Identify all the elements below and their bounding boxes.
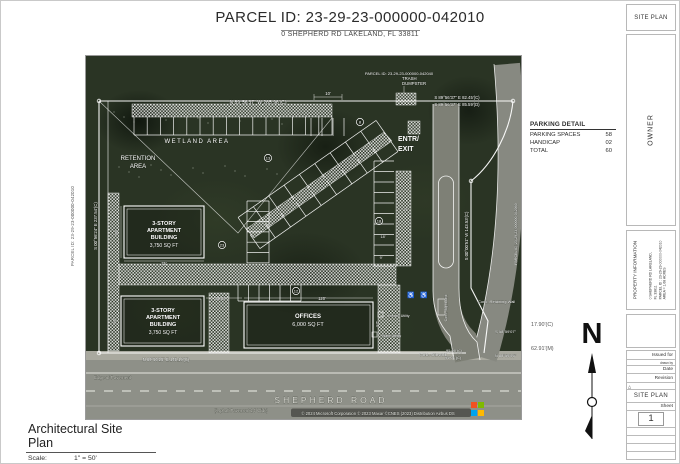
wetland-dot [118, 166, 119, 167]
dim-annotation: 17.90'(C) [531, 322, 553, 328]
ms-logo-square [478, 402, 484, 408]
page-title: PARCEL ID: 23-29-23-000000-042010 [150, 9, 550, 26]
map-label: OFFICES [295, 314, 321, 320]
wetland-dot [234, 170, 235, 171]
scale-value: 1" = 50' [74, 455, 97, 462]
parking-count-number: 23 [220, 243, 225, 248]
plan-name-row: SITE PLAN [627, 390, 675, 403]
parking-stall-line [238, 217, 248, 231]
wetland-dot [192, 167, 193, 168]
map-label: (Asphalt Pavement 24' Wide) [214, 408, 269, 413]
page-subtitle: 0 SHEPHERD RD LAKELAND, FL 33811 [150, 31, 550, 38]
parking-stall-line [330, 153, 340, 167]
parking-stall-line [376, 120, 386, 134]
owner-label-wrap: OWNER [627, 35, 675, 225]
north-letter: N [577, 319, 607, 349]
wetland-dot [207, 122, 208, 123]
map-label: EXIT [398, 146, 414, 153]
map-label: Water Utility [382, 334, 401, 338]
property-info-panel: PROPERTY INFORMATION 0 SHEPHERD RD LAKEL… [626, 230, 676, 310]
revision-row: Revision [627, 374, 675, 383]
map-label: Electric Utility [388, 314, 410, 318]
plan-title: Architectural Site Plan [26, 422, 156, 453]
owner-label: OWNER [648, 114, 655, 146]
wetland-dot [281, 123, 282, 124]
parking-row-value: 60 [606, 147, 612, 155]
wetland-dot [266, 168, 267, 169]
titleblock-rows: Issued for drawn by Date Revision △ SITE… [626, 350, 676, 460]
issued-for-row: Issued for [627, 351, 675, 360]
wetland-dot [261, 113, 262, 114]
property-info-title: PROPERTY INFORMATION [632, 241, 637, 299]
map-label: 3,750 SQ FT [150, 243, 179, 249]
parking-row-label: TOTAL [530, 147, 548, 155]
empty-row [627, 428, 675, 436]
map-label: ♿ [407, 291, 415, 299]
title-underline [281, 30, 420, 31]
sheet-corner-label: SITE PLAN [626, 4, 676, 31]
map-label: N 89°50'25" E 145.19'(C) [143, 357, 190, 362]
map-label: 50' [114, 229, 119, 235]
parking-row-value: 02 [606, 139, 612, 147]
ms-logo-square [471, 410, 477, 416]
map-label: BUILDING [151, 235, 178, 241]
parking-row-value: 58 [606, 131, 612, 139]
wetland-dot [155, 114, 156, 115]
map-label: S 00°00'51" W 143.53'(C) [464, 211, 469, 260]
scale-label: Scale: [28, 455, 74, 462]
wetland-dot [128, 171, 129, 172]
ms-logo-square [471, 402, 477, 408]
parking-stall-line [284, 185, 294, 199]
parking-detail-row: HANDICAP 02 [530, 139, 612, 147]
parking-detail-row: PARKING SPACES 58 [530, 131, 612, 139]
parking-stall-line [345, 142, 355, 156]
property-address-2: FL 33811 [653, 285, 657, 299]
wetland-dot [113, 111, 114, 112]
ms-logo-square [478, 410, 484, 416]
map-label: WETLAND AREA [164, 139, 229, 145]
map-label: N 88°59'05" [495, 353, 517, 358]
parking-stall-line [253, 207, 263, 221]
parking-detail-row: TOTAL 60 [530, 147, 612, 155]
map-label: APARTMENT [147, 228, 182, 234]
parking-stall-line [388, 138, 398, 152]
map-label: © 2024 Microsoft Corporation © 2023 Maxa… [301, 411, 455, 416]
parking-stall-line [260, 152, 398, 249]
property-area: AREA = 1.68 ACRES [663, 267, 667, 299]
microsoft-logo [471, 402, 485, 416]
map-label: 120' [318, 296, 326, 301]
map-label: Edge of Pavement [94, 375, 132, 380]
empty-panel [626, 314, 676, 348]
map-label: 3,750 SQ FT [149, 330, 178, 336]
wetland-dot [244, 175, 245, 176]
owner-panel: OWNER [626, 34, 676, 226]
map-label: BUILDING [150, 322, 177, 328]
map-label: AREA [130, 164, 146, 170]
map-label: PARCEL ID: 23-29-23-000000-042060 [514, 203, 518, 264]
empty-row [627, 444, 675, 452]
apartment-building-2 [121, 296, 204, 346]
empty-row [627, 436, 675, 444]
date-row: Date [627, 366, 675, 374]
map-label: Conc. Sidewalk [419, 352, 447, 357]
wetland-dot [133, 121, 134, 122]
parking-stall-line [315, 164, 325, 178]
north-arrow-glyph [579, 349, 605, 443]
map-label: S 89°56'37" E 82.45'(C) [434, 95, 480, 100]
parking-detail-title: PARKING DETAIL [530, 121, 616, 130]
map-label: Conc. Retaining Wall [478, 299, 515, 304]
wetland-dot [271, 118, 272, 119]
site-plan-map: PARCEL ID: 23-29-23-000000-042040N 89°56… [85, 55, 522, 420]
map-label: S 89°56'37" E 85.59'(D) [434, 102, 480, 107]
map-label: 10' [325, 91, 331, 96]
wetland-dot [187, 112, 188, 113]
parking-stall-line [269, 196, 279, 210]
wetland-dot [276, 173, 277, 174]
revision-delta-icon: △ [627, 383, 675, 390]
map-label: N 89°56'37" W 265.96'(C) [229, 100, 286, 106]
property-parcel: PARCEL ID : 23-29-23-000000-042010 [658, 241, 662, 300]
wetland-dot [224, 165, 225, 166]
map-label: 30.67' [215, 296, 226, 301]
header: PARCEL ID: 23-29-23-000000-042010 0 SHEP… [150, 9, 550, 38]
property-info-title-wrap: PROPERTY INFORMATION [627, 231, 642, 309]
map-label: ♿ [420, 291, 428, 299]
wetland-dot [202, 172, 203, 173]
parking-count-number: 13 [266, 156, 271, 161]
map-label: PARCEL ID: 23-29-23-000000-042040 [365, 71, 434, 76]
map-label: 3-STORY [152, 221, 176, 227]
wetland-dot [138, 176, 139, 177]
map-label: 9' [380, 256, 383, 260]
site-plan-sheet: PARCEL ID: 23-29-23-000000-042010 0 SHEP… [0, 0, 680, 464]
map-label: SHEPHERD ROAD [274, 395, 387, 405]
parking-count-number: 18 [377, 219, 382, 224]
map-label: 57' [375, 321, 380, 327]
wetland-dot [197, 117, 198, 118]
parking-row-label: PARKING SPACES [530, 131, 580, 139]
map-label: RETENTION [121, 156, 156, 162]
parking-stall-line [299, 174, 309, 188]
property-info-details-wrap: 0 SHEPHERD RD LAKELAND, FL 33811 PARCEL … [642, 231, 674, 309]
map-label: 6,000 SQ FT [292, 322, 324, 328]
parking-detail: PARKING DETAIL PARKING SPACES 58 HANDICA… [530, 121, 616, 155]
property-address-1: 0 SHEPHERD RD LAKELAND, [648, 252, 652, 299]
wetland-dot [123, 116, 124, 117]
wetland-dot [229, 115, 230, 116]
map-label: ENTR/ [398, 136, 419, 143]
wetland-dot [170, 174, 171, 175]
property-info-details: 0 SHEPHERD RD LAKELAND, FL 33811 PARCEL … [648, 241, 667, 300]
map-label: DUMPSTER [402, 81, 426, 86]
map-label: 18' [381, 235, 386, 239]
north-arrow: N [577, 319, 607, 443]
map-label: 3-STORY [151, 308, 175, 314]
parking-stall-line [361, 131, 371, 145]
parking-row-label: HANDICAP [530, 139, 560, 147]
map-label: Conc. Signboard [444, 295, 448, 322]
map-label: 95.01'(C) [445, 355, 462, 360]
plan-title-block: Architectural Site Plan Scale: 1" = 50' [26, 422, 156, 462]
sheet-number-row: 1 [627, 411, 675, 428]
wetland-dot [165, 119, 166, 120]
map-label: 95.00'(C) [446, 348, 463, 353]
sheet-number: 1 [638, 412, 664, 426]
map-label: 15' [404, 208, 409, 212]
map-label: 50' [112, 318, 117, 324]
dim-annotation: 62.91'(M) [531, 346, 554, 352]
wetland-dot [160, 169, 161, 170]
parking-count-number: 12 [294, 289, 299, 294]
map-label: APARTMENT [146, 315, 181, 321]
left-margin-parcel-label: PARCEL ID: 23-29-23-000000-042010 [70, 186, 75, 266]
map-label: S 00°56'24" E 237.54'(C) [93, 202, 98, 250]
map-label: S 58°59'07" [495, 329, 516, 334]
sheet-corner-text: SITE PLAN [634, 15, 667, 21]
sheet-label-row: Sheet [627, 403, 675, 411]
wetland-dot [239, 120, 240, 121]
plan-scale: Scale: 1" = 50' [26, 455, 156, 462]
map-label: 75' [161, 261, 167, 266]
wetland-dot [150, 164, 151, 165]
